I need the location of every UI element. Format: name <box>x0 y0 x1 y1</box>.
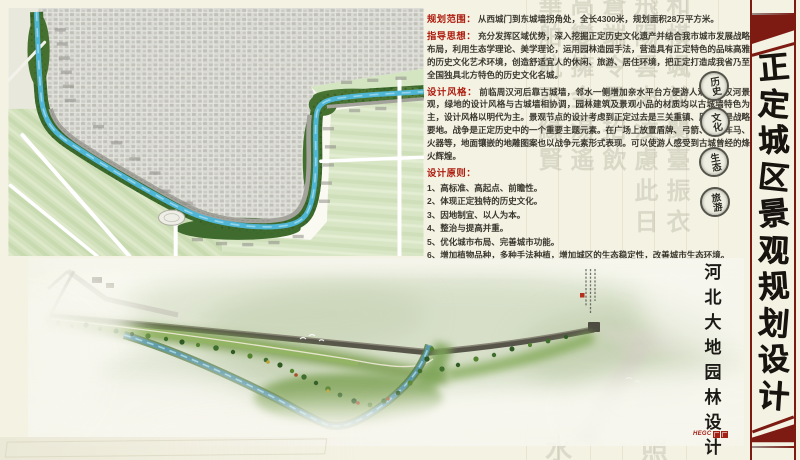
style-heading: 设计风格： <box>427 87 477 97</box>
culture-seal: 文化 <box>700 107 730 137</box>
title-character: 规 <box>756 270 789 305</box>
institute-logo: HEGC <box>693 429 729 439</box>
guiding-paragraph: 指导思想：充分发挥区域优势，深入挖掘正定历史文化遗产并结合我市城市发展战略布局，… <box>427 30 750 82</box>
banner-top-thin-line <box>752 13 794 15</box>
banner-bottom-block <box>752 424 794 443</box>
principle-item: 3、因地制宜、以人为本。 <box>427 209 750 222</box>
credit-character: 林 <box>705 383 722 408</box>
credit-character: 地 <box>705 333 722 358</box>
credit-character: 河 <box>705 258 722 283</box>
banner-top-block <box>752 15 794 44</box>
title-character: 设 <box>757 344 790 379</box>
guiding-heading: 指导思想： <box>427 31 476 41</box>
scope-text: 从西城门到东城墙拐角处，全长4300米，规划面积28万平方米。 <box>478 14 719 24</box>
text-panel: 规划范围：从西城门到东城墙拐角处，全长4300米，规划面积28万平方米。 指导思… <box>427 13 750 262</box>
seal-characters: 历史 <box>707 76 720 96</box>
scope-paragraph: 规划范围：从西城门到东城墙拐角处，全长4300米，规划面积28万平方米。 <box>427 13 750 26</box>
principle-item: 4、整治与提高并重。 <box>427 222 750 235</box>
banner-right-rule <box>794 0 796 460</box>
banner-bottom-thin-line <box>752 446 794 448</box>
institute-logo-block <box>721 431 728 438</box>
title-character: 观 <box>757 234 790 269</box>
master-plan-svg <box>8 8 424 256</box>
seal-characters: 文化 <box>708 112 721 132</box>
title-character: 城 <box>757 124 790 159</box>
poster-title: 正定城区景观规划设计 <box>752 52 794 414</box>
title-character: 定 <box>756 88 789 123</box>
title-character: 计 <box>756 380 789 415</box>
title-character: 正 <box>756 51 790 87</box>
seal-characters: 生态 <box>707 152 720 172</box>
title-banner: 正定城区景观规划设计 <box>748 0 800 460</box>
title-character: 划 <box>756 307 790 343</box>
ecology-seal: 生态 <box>699 147 729 177</box>
sketch-strip <box>0 437 356 460</box>
scope-heading: 规划范围： <box>427 14 476 24</box>
red-seal <box>580 293 585 298</box>
perspective-render-svg <box>28 258 744 446</box>
seal-characters: 旅游 <box>708 192 721 212</box>
title-character: 景 <box>756 197 790 233</box>
map-oval-plaza <box>159 210 185 225</box>
institute-logo-block <box>713 431 720 438</box>
credit-character: 北 <box>705 283 722 308</box>
principle-item: 5、优化城市布局、完善城市功能。 <box>427 236 750 249</box>
wall-corner-tower <box>588 322 600 332</box>
institute-logo-text: HEGC <box>693 431 712 437</box>
design-institute-credit: 河北大地园林设计院 <box>701 258 725 440</box>
credit-character: 大 <box>705 308 722 333</box>
tourism-seal: 旅游 <box>700 187 730 217</box>
title-character: 区 <box>756 160 790 196</box>
perspective-render <box>28 258 744 446</box>
planning-poster: 華舶航不緣賢高變擁金湯遙蒼端令君招飲飛陽雲來淩慮此日和橫颯並蘭臺振衣 水照 <box>0 0 800 460</box>
history-seal: 历史 <box>699 71 729 101</box>
master-plan-map <box>8 8 424 256</box>
credit-character: 园 <box>705 358 722 383</box>
